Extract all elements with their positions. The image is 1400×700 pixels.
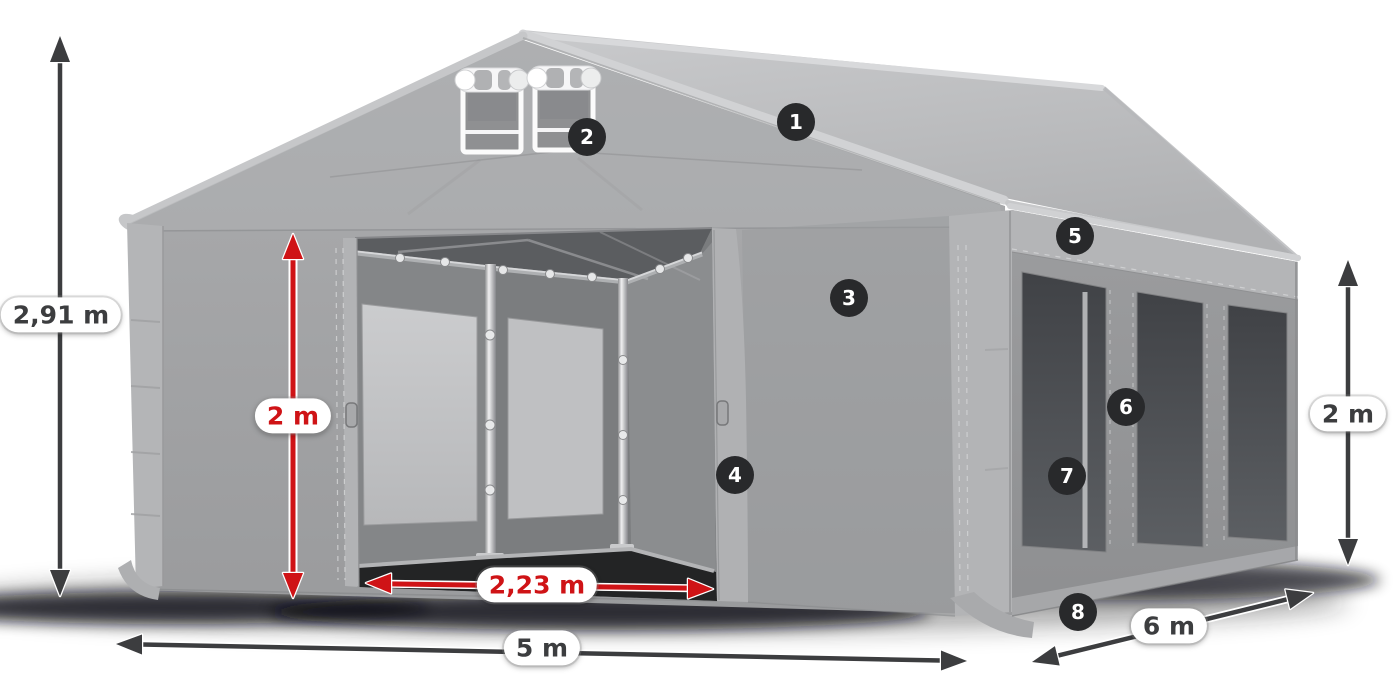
front-left-corner [118, 223, 163, 600]
tent-illustration [0, 0, 1400, 700]
side-window-2 [1137, 292, 1203, 547]
callout-badge-5: 5 [1056, 217, 1094, 255]
interior-window-left [362, 304, 477, 525]
dim-label-total-height: 2,91 m [1, 297, 121, 332]
dim-label-entrance-height: 2 m [255, 398, 331, 433]
dim-label-side-length: 6 m [1131, 608, 1207, 643]
side-wall [1010, 206, 1298, 616]
callout-badge-7: 7 [1048, 457, 1086, 495]
callout-badge-2: 2 [568, 118, 606, 156]
entrance-interior [355, 228, 717, 601]
callout-badge-8: 8 [1059, 593, 1097, 631]
side-window-3 [1228, 305, 1287, 541]
roof-vent-left [455, 68, 529, 152]
callout-badge-1: 1 [777, 103, 815, 141]
callout-badge-6: 6 [1107, 388, 1145, 426]
dim-label-side-wall-height: 2 m [1310, 396, 1386, 431]
side-window-1 [1022, 272, 1106, 552]
dim-label-entrance-width: 2,23 m [477, 567, 597, 602]
callout-badge-3: 3 [830, 279, 868, 317]
door-tie-clip-right [717, 401, 728, 425]
tent-product-diagram: 2,91 m 2 m 2,23 m 5 m 6 m 2 m 1 2 3 4 5 … [0, 0, 1400, 700]
door-tie-clip-left [346, 403, 357, 427]
callout-badge-4: 4 [716, 456, 754, 494]
interior-window-right [508, 318, 603, 519]
dim-label-front-width: 5 m [504, 630, 580, 665]
